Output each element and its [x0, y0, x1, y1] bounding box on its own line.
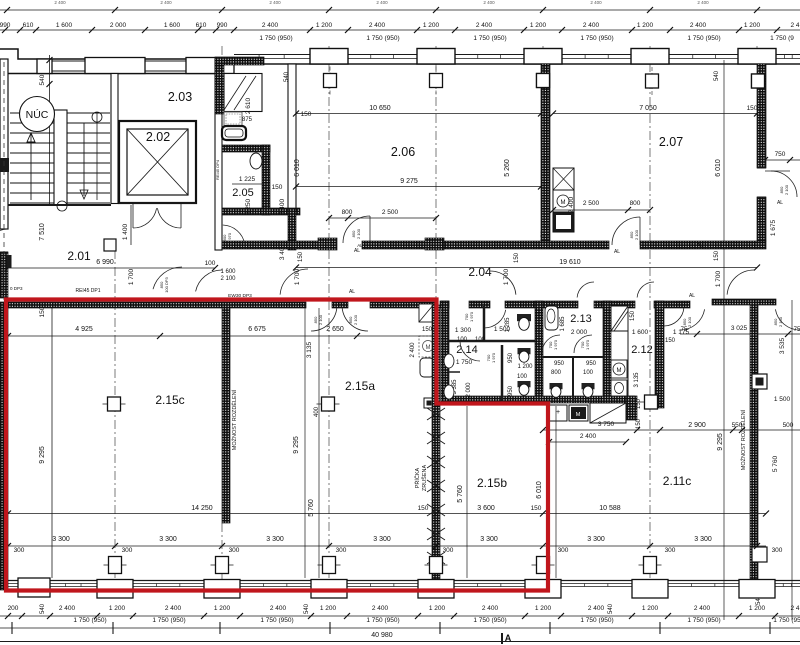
svg-text:2 400: 2 400 [165, 605, 182, 612]
svg-text:2.05: 2.05 [232, 187, 253, 199]
svg-text:1 700: 1 700 [715, 270, 722, 287]
svg-text:800: 800 [551, 370, 562, 376]
svg-text:ZRUŠENA: ZRUŠENA [421, 465, 428, 492]
svg-text:540: 540 [714, 70, 720, 81]
svg-text:2 100: 2 100 [778, 316, 783, 327]
svg-text:6 990: 6 990 [96, 259, 114, 266]
svg-text:950: 950 [554, 361, 565, 367]
svg-text:1 750 (950): 1 750 (950) [259, 35, 292, 42]
svg-text:1 750 (950): 1 750 (950) [260, 617, 293, 624]
svg-text:300: 300 [336, 547, 347, 554]
svg-text:1 200: 1 200 [530, 22, 547, 29]
svg-text:150: 150 [636, 418, 642, 429]
svg-text:990: 990 [217, 22, 228, 29]
svg-text:1 500: 1 500 [494, 326, 511, 333]
svg-text:1 200: 1 200 [642, 605, 659, 612]
svg-text:14 250: 14 250 [191, 505, 213, 512]
svg-text:2.01: 2.01 [67, 249, 91, 263]
svg-text:1 200: 1 200 [316, 22, 333, 29]
svg-text:150: 150 [514, 252, 520, 263]
svg-text:MOŽNOST ROZDĚLENÍ: MOŽNOST ROZDĚLENÍ [739, 409, 747, 470]
svg-text:1 750 (950): 1 750 (950) [366, 617, 399, 624]
svg-text:1 750 (950): 1 750 (950) [580, 617, 613, 624]
svg-text:1 970: 1 970 [491, 352, 496, 363]
svg-text:150: 150 [714, 250, 720, 261]
svg-text:2 100: 2 100 [687, 316, 692, 327]
svg-text:2.14: 2.14 [456, 344, 477, 356]
svg-text:3 535: 3 535 [779, 337, 786, 354]
svg-text:PŘÍČKA: PŘÍČKA [413, 467, 421, 488]
svg-text:AL: AL [777, 200, 783, 206]
svg-text:2 400: 2 400 [583, 22, 600, 29]
svg-text:2 400: 2 400 [694, 605, 711, 612]
svg-text:1 970: 1 970 [469, 311, 474, 322]
svg-text:AL: AL [697, 243, 703, 249]
svg-text:2 100: 2 100 [353, 314, 358, 325]
svg-text:2 500: 2 500 [583, 200, 600, 207]
svg-text:2 400: 2 400 [372, 605, 389, 612]
svg-text:AL: AL [689, 293, 695, 299]
svg-text:2 400: 2 400 [590, 0, 602, 5]
svg-text:300: 300 [558, 547, 569, 554]
svg-text:REI45 DP1: REI45 DP1 [75, 288, 100, 294]
svg-text:2 400: 2 400 [568, 196, 575, 213]
svg-text:950: 950 [586, 361, 597, 367]
svg-text:750: 750 [775, 151, 786, 158]
svg-text:6 675: 6 675 [248, 326, 266, 333]
svg-text:150: 150 [272, 184, 283, 191]
svg-text:1 970: 1 970 [585, 339, 590, 350]
svg-text:6 010: 6 010 [536, 481, 543, 499]
svg-text:3 600: 3 600 [477, 505, 495, 512]
svg-text:1 700: 1 700 [128, 268, 135, 285]
svg-text:400: 400 [314, 406, 320, 417]
svg-text:3 300: 3 300 [587, 536, 605, 543]
svg-text:1 200: 1 200 [423, 22, 440, 29]
svg-text:1 200: 1 200 [320, 605, 337, 612]
svg-text:2 400: 2 400 [482, 605, 499, 612]
svg-text:2 400: 2 400 [160, 0, 172, 5]
svg-text:9 295: 9 295 [717, 433, 724, 451]
svg-text:990: 990 [0, 22, 11, 29]
svg-text:2.12: 2.12 [631, 344, 652, 356]
svg-text:950: 950 [508, 352, 514, 363]
svg-text:1 200: 1 200 [109, 605, 126, 612]
svg-text:1 750 (950): 1 750 (950) [152, 617, 185, 624]
svg-text:3 135: 3 135 [306, 341, 313, 358]
svg-text:2 100: 2 100 [220, 276, 236, 282]
svg-text:9 295: 9 295 [39, 446, 46, 464]
svg-text:3 300: 3 300 [159, 536, 177, 543]
svg-text:19 610: 19 610 [559, 259, 581, 266]
svg-text:1 175: 1 175 [673, 329, 690, 336]
svg-text:100: 100 [475, 337, 486, 343]
svg-text:2 400: 2 400 [269, 0, 281, 5]
svg-text:300: 300 [14, 547, 25, 554]
svg-text:2 400: 2 400 [580, 433, 597, 440]
svg-text:150: 150 [298, 251, 304, 262]
svg-text:2 4: 2 4 [790, 22, 799, 29]
svg-text:2.11c: 2.11c [663, 474, 691, 488]
svg-text:1 750 (950): 1 750 (950) [580, 35, 613, 42]
svg-text:2 000: 2 000 [571, 329, 588, 336]
svg-text:2.15c: 2.15c [155, 393, 184, 407]
svg-text:40 980: 40 980 [371, 632, 393, 639]
svg-text:2 900: 2 900 [688, 422, 706, 429]
svg-text:1 600: 1 600 [56, 22, 73, 29]
svg-text:610: 610 [23, 22, 34, 29]
svg-text:150: 150 [630, 310, 636, 321]
svg-text:2 400: 2 400 [483, 0, 495, 5]
svg-text:100: 100 [583, 370, 594, 376]
svg-text:2 610: 2 610 [245, 97, 252, 114]
svg-text:1 200: 1 200 [214, 605, 231, 612]
svg-text:150: 150 [418, 505, 429, 512]
svg-text:NÚC: NÚC [26, 108, 49, 121]
svg-text:300: 300 [665, 547, 676, 554]
svg-text:AL: AL [349, 289, 355, 295]
svg-text:2 400: 2 400 [476, 22, 493, 29]
svg-text:540: 540 [284, 71, 290, 82]
svg-text:540: 540 [608, 603, 614, 614]
svg-text:950: 950 [508, 385, 514, 396]
svg-text:2 400: 2 400 [369, 22, 386, 29]
svg-text:1 200: 1 200 [429, 605, 446, 612]
svg-text:3 400: 3 400 [279, 198, 286, 215]
svg-text:540: 540 [39, 74, 46, 85]
svg-text:1 225: 1 225 [239, 176, 256, 183]
svg-text:2 400: 2 400 [690, 22, 707, 29]
svg-text:150: 150 [665, 338, 676, 344]
svg-text:5 760: 5 760 [457, 485, 464, 503]
svg-text:2.07: 2.07 [659, 135, 683, 149]
svg-text:1 750 (950): 1 750 (950) [473, 35, 506, 42]
svg-text:2 500: 2 500 [382, 209, 399, 216]
svg-text:6 010: 6 010 [715, 159, 722, 177]
svg-text:2 4: 2 4 [790, 605, 799, 612]
svg-text:2.03: 2.03 [168, 90, 192, 104]
svg-text:2 100: 2 100 [634, 229, 639, 240]
svg-text:3 135: 3 135 [634, 372, 640, 388]
svg-text:2 400: 2 400 [59, 605, 76, 612]
svg-text:+: + [556, 409, 560, 416]
svg-text:550: 550 [732, 422, 743, 429]
svg-text:1 750 (9: 1 750 (9 [770, 35, 794, 42]
svg-text:1 200: 1 200 [517, 364, 533, 370]
svg-text:5 760: 5 760 [308, 499, 315, 517]
svg-text:3 250: 3 250 [245, 198, 252, 215]
svg-text:300: 300 [229, 547, 240, 554]
svg-text:5 260: 5 260 [504, 159, 511, 177]
svg-text:9 275: 9 275 [400, 178, 418, 185]
svg-text:2.13: 2.13 [570, 313, 591, 325]
svg-text:0 DP3: 0 DP3 [10, 286, 23, 291]
svg-text:2.06: 2.06 [391, 145, 415, 159]
svg-text:2 400: 2 400 [588, 605, 605, 612]
svg-text:1 750 (95: 1 750 (95 [773, 617, 800, 624]
svg-text:200: 200 [8, 605, 19, 612]
svg-text:1 685: 1 685 [560, 316, 566, 332]
svg-text:1 600: 1 600 [632, 329, 649, 336]
svg-text:2.02: 2.02 [146, 130, 170, 144]
svg-text:4 925: 4 925 [75, 326, 93, 333]
svg-text:2 000: 2 000 [466, 382, 472, 398]
svg-text:3 300: 3 300 [52, 536, 70, 543]
svg-text:10 650: 10 650 [369, 105, 391, 112]
svg-text:100: 100 [205, 260, 216, 267]
svg-text:150: 150 [531, 505, 542, 512]
svg-text:7 050: 7 050 [639, 105, 657, 112]
svg-text:1 750 (950): 1 750 (950) [366, 35, 399, 42]
svg-text:300: 300 [772, 547, 783, 554]
svg-text:150: 150 [39, 306, 46, 317]
svg-text:150: 150 [301, 111, 312, 118]
svg-text:1 750 (950): 1 750 (950) [73, 617, 106, 624]
svg-text:3 300: 3 300 [266, 536, 284, 543]
svg-text:9 295: 9 295 [293, 436, 300, 454]
svg-text:1 675: 1 675 [770, 219, 777, 236]
svg-text:75: 75 [794, 327, 800, 333]
svg-text:800: 800 [630, 200, 641, 207]
svg-text:3 300: 3 300 [373, 536, 391, 543]
svg-text:2 400: 2 400 [697, 0, 709, 5]
svg-text:1 970: 1 970 [553, 339, 558, 350]
svg-text:5 760: 5 760 [772, 455, 779, 472]
svg-text:AL: AL [614, 249, 620, 255]
svg-text:3 300: 3 300 [480, 536, 498, 543]
svg-text:M: M [426, 345, 431, 351]
svg-text:1 200: 1 200 [535, 605, 552, 612]
svg-text:2 400: 2 400 [262, 22, 279, 29]
svg-text:1 750: 1 750 [456, 359, 473, 366]
svg-text:1 200: 1 200 [749, 605, 766, 612]
svg-text:2.15a: 2.15a [345, 379, 375, 393]
svg-text:610: 610 [196, 22, 207, 29]
svg-text:540: 540 [40, 603, 46, 614]
svg-text:AL: AL [357, 243, 363, 248]
svg-text:1 400: 1 400 [122, 223, 129, 240]
svg-text:REI45 DP4: REI45 DP4 [215, 159, 220, 180]
svg-text:100: 100 [457, 337, 468, 343]
svg-text:1 300: 1 300 [455, 327, 472, 334]
svg-text:150: 150 [422, 327, 433, 333]
svg-text:2 400: 2 400 [54, 0, 66, 5]
svg-text:2 400: 2 400 [376, 0, 388, 5]
svg-text:1 200: 1 200 [637, 22, 654, 29]
svg-text:2 100: 2 100 [784, 184, 789, 195]
svg-text:M: M [561, 200, 566, 206]
svg-text:10 588: 10 588 [599, 505, 621, 512]
svg-text:M: M [576, 412, 581, 418]
svg-text:2 400: 2 400 [270, 605, 287, 612]
svg-text:1 750 (950): 1 750 (950) [473, 617, 506, 624]
svg-text:1 600: 1 600 [164, 22, 181, 29]
svg-text:3 750: 3 750 [598, 421, 615, 428]
svg-text:3 025: 3 025 [731, 325, 748, 332]
svg-text:300: 300 [122, 547, 133, 554]
svg-text:6 010: 6 010 [294, 159, 301, 177]
svg-text:150: 150 [747, 105, 758, 112]
svg-text:7 510: 7 510 [39, 223, 46, 241]
svg-text:1 200: 1 200 [744, 22, 761, 29]
svg-text:2 400: 2 400 [410, 342, 416, 358]
svg-text:2 650: 2 650 [326, 326, 344, 333]
svg-text:2 100: 2 100 [356, 228, 361, 239]
svg-text:1 500: 1 500 [774, 396, 791, 403]
svg-text:1 750 (950): 1 750 (950) [687, 617, 720, 624]
svg-text:M: M [617, 368, 622, 374]
svg-text:100: 100 [517, 374, 528, 380]
svg-text:875: 875 [242, 117, 253, 123]
svg-text:150: 150 [636, 398, 642, 409]
svg-text:MOŽNOST ROZDĚLENÍ: MOŽNOST ROZDĚLENÍ [230, 389, 238, 450]
svg-text:800: 800 [342, 209, 353, 216]
svg-text:100 DP3: 100 DP3 [164, 276, 169, 292]
svg-text:1 600: 1 600 [220, 269, 236, 275]
svg-text:2 000: 2 000 [110, 22, 127, 29]
svg-text:1 750 (950): 1 750 (950) [687, 35, 720, 42]
svg-text:540: 540 [304, 603, 310, 614]
svg-text:3 300: 3 300 [694, 536, 712, 543]
svg-text:300: 300 [443, 547, 454, 554]
svg-text:2.15b: 2.15b [477, 476, 507, 490]
svg-text:AL: AL [354, 248, 360, 254]
svg-text:A: A [505, 633, 512, 643]
